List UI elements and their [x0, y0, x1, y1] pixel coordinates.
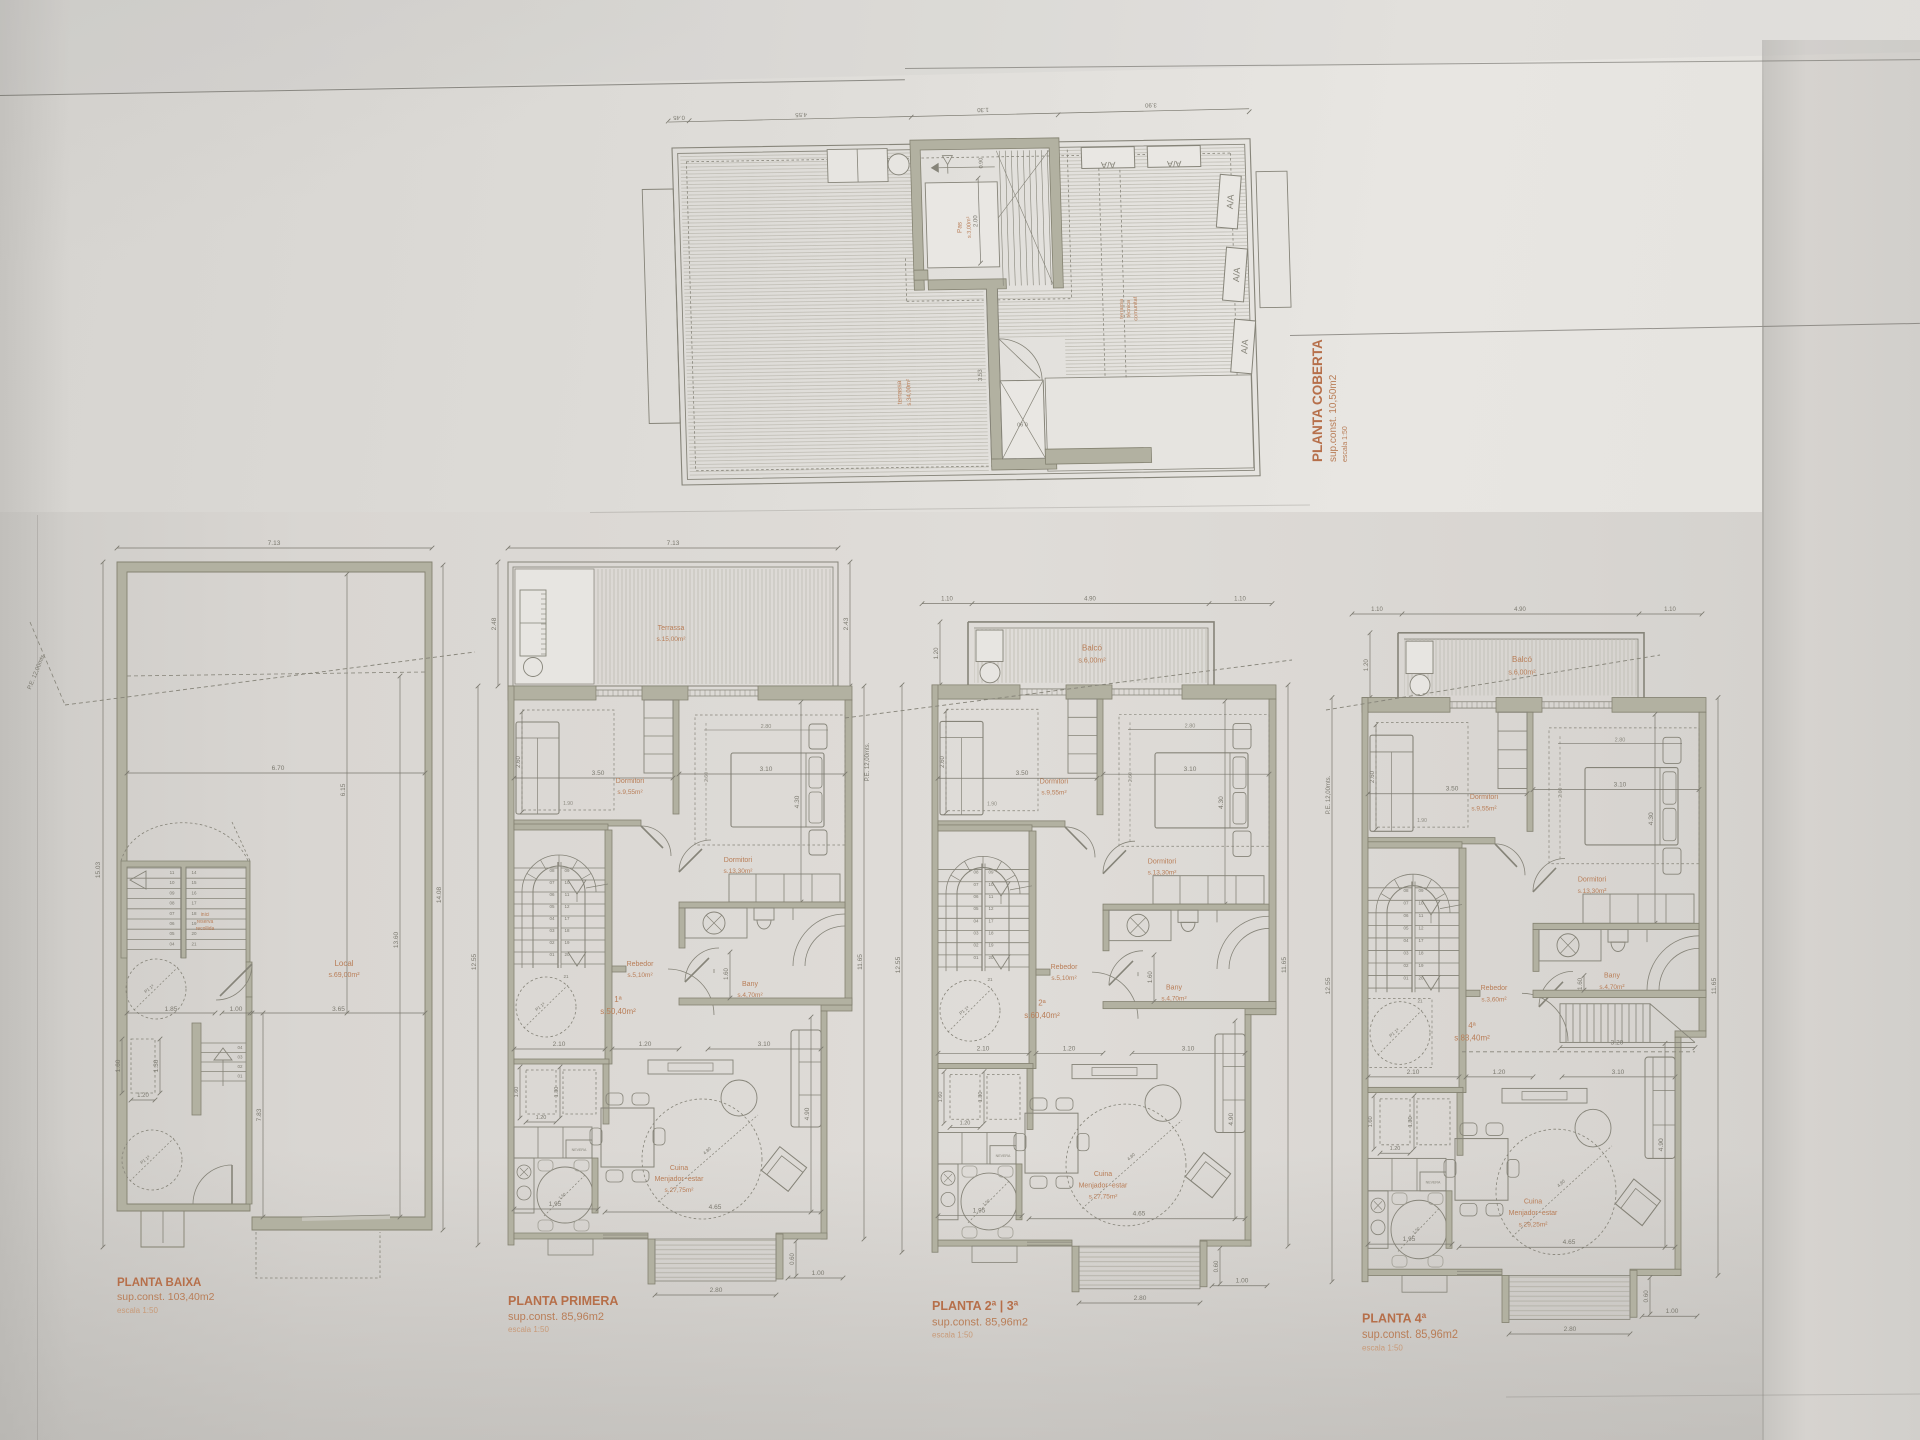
svg-text:s.83,40m²: s.83,40m² [1454, 1033, 1490, 1042]
svg-text:1.20: 1.20 [960, 1120, 971, 1126]
svg-text:07: 07 [169, 911, 175, 916]
svg-text:1.60: 1.60 [938, 1092, 944, 1103]
svg-text:11: 11 [1419, 913, 1424, 918]
svg-text:1,50: 1,50 [557, 1191, 567, 1200]
svg-text:s.60,40m²: s.60,40m² [1024, 1011, 1060, 1020]
svg-text:sup.const. 85,96m2: sup.const. 85,96m2 [508, 1311, 604, 1323]
svg-text:7.13: 7.13 [667, 540, 680, 547]
svg-text:Menjador−estar: Menjador−estar [1509, 1209, 1558, 1217]
svg-text:1.20: 1.20 [1493, 1069, 1506, 1076]
svg-text:1.30: 1.30 [554, 1087, 560, 1098]
svg-text:0.60: 0.60 [790, 1253, 796, 1265]
svg-text:s.50,40m²: s.50,40m² [600, 1007, 636, 1016]
svg-text:3.10: 3.10 [1184, 766, 1197, 773]
svg-text:2.60: 2.60 [1558, 787, 1564, 797]
svg-text:06: 06 [169, 921, 175, 926]
svg-text:Dormitori: Dormitori [1040, 778, 1069, 785]
svg-text:3.10: 3.10 [1182, 1045, 1195, 1052]
svg-text:s.34,00m²: s.34,00m² [906, 379, 913, 406]
svg-text:4.30: 4.30 [1218, 796, 1225, 809]
svg-text:1.20: 1.20 [137, 1093, 149, 1099]
svg-text:4.90: 4.90 [804, 1107, 811, 1120]
svg-text:P1 1ª: P1 1ª [1388, 1027, 1400, 1038]
svg-text:2.00: 2.00 [973, 215, 979, 227]
svg-text:19: 19 [564, 940, 570, 945]
svg-text:1.20: 1.20 [639, 1041, 652, 1048]
svg-text:17: 17 [989, 918, 994, 923]
svg-text:13.60: 13.60 [393, 931, 400, 948]
svg-text:12: 12 [989, 906, 994, 911]
svg-text:s.29,25m²: s.29,25m² [1519, 1221, 1549, 1228]
svg-text:Cuina: Cuina [1094, 1171, 1112, 1178]
svg-text:12: 12 [1418, 925, 1423, 930]
svg-text:2ª: 2ª [1038, 999, 1045, 1008]
svg-text:sup.const. 103,40m2: sup.const. 103,40m2 [117, 1291, 215, 1303]
svg-text:12.55: 12.55 [895, 956, 902, 973]
svg-text:2.60: 2.60 [1128, 772, 1134, 782]
svg-text:07: 07 [1403, 900, 1408, 905]
svg-text:sup.const. 85,96m2: sup.const. 85,96m2 [932, 1316, 1028, 1328]
svg-text:s.27,75m²: s.27,75m² [665, 1187, 695, 1194]
svg-text:Bany: Bany [1604, 972, 1620, 980]
svg-text:NEVERA: NEVERA [1426, 1180, 1441, 1184]
svg-text:4.65: 4.65 [1563, 1239, 1576, 1246]
svg-text:1.20: 1.20 [536, 1115, 547, 1121]
svg-text:03: 03 [237, 1055, 243, 1060]
svg-text:11.65: 11.65 [1711, 977, 1718, 994]
svg-text:7.13: 7.13 [268, 540, 281, 547]
svg-text:1.10: 1.10 [1371, 606, 1383, 613]
svg-text:2.60: 2.60 [940, 755, 946, 767]
svg-text:A/A: A/A [1231, 267, 1242, 282]
svg-text:2.80: 2.80 [1615, 737, 1626, 743]
svg-text:s.5,10m²: s.5,10m² [627, 972, 653, 979]
svg-text:Bany: Bany [1166, 984, 1182, 991]
svg-text:2.60: 2.60 [1369, 770, 1376, 783]
svg-text:3.10: 3.10 [760, 766, 773, 773]
svg-text:1.00: 1.00 [812, 1270, 825, 1277]
svg-text:1.60: 1.60 [1148, 971, 1154, 983]
svg-text:05: 05 [549, 904, 555, 909]
svg-text:1.60: 1.60 [514, 1087, 520, 1098]
svg-text:21: 21 [1417, 999, 1422, 1004]
svg-text:2.43: 2.43 [843, 617, 850, 630]
svg-text:4.30: 4.30 [1648, 812, 1655, 825]
svg-text:s.4,70m²: s.4,70m² [1161, 995, 1187, 1002]
svg-text:escala 1:50: escala 1:50 [932, 1330, 973, 1339]
svg-text:A/A: A/A [1225, 194, 1236, 209]
svg-text:3.53: 3.53 [978, 369, 984, 381]
svg-text:1,50: 1,50 [1412, 1225, 1422, 1234]
svg-text:1.10: 1.10 [1234, 597, 1246, 603]
svg-text:1.30: 1.30 [153, 1059, 160, 1072]
svg-text:12.55: 12.55 [471, 953, 478, 970]
svg-text:4.90: 4.90 [1658, 1138, 1665, 1151]
svg-text:4,80: 4,80 [1126, 1152, 1136, 1162]
svg-text:1.20: 1.20 [1363, 658, 1370, 671]
svg-text:Balcó: Balcó [1512, 655, 1532, 664]
svg-text:18: 18 [989, 931, 994, 936]
svg-text:PLANTA 2ª | 3ª: PLANTA 2ª | 3ª [932, 1299, 1019, 1313]
svg-text:1ª: 1ª [614, 995, 621, 1004]
svg-text:1.00: 1.00 [230, 1006, 243, 1013]
svg-text:2.60: 2.60 [704, 772, 710, 782]
svg-text:08: 08 [169, 901, 175, 906]
svg-text:3.10: 3.10 [758, 1041, 771, 1048]
svg-text:tècnica: tècnica [1126, 299, 1133, 317]
svg-text:01: 01 [549, 952, 555, 957]
svg-text:14.08: 14.08 [436, 886, 443, 903]
svg-text:Local: Local [334, 959, 353, 968]
svg-text:3.50: 3.50 [1446, 785, 1459, 792]
svg-text:sup.const. 85,96m2: sup.const. 85,96m2 [1362, 1329, 1458, 1341]
svg-text:1.30: 1.30 [1408, 1116, 1414, 1127]
svg-text:PLANTA BAIXA: PLANTA BAIXA [117, 1277, 201, 1289]
svg-text:2.80: 2.80 [710, 1287, 723, 1294]
svg-text:01: 01 [1403, 976, 1408, 981]
svg-text:7.83: 7.83 [256, 1108, 263, 1121]
svg-text:1.20: 1.20 [934, 647, 940, 659]
svg-text:02: 02 [237, 1064, 243, 1069]
svg-text:1.20: 1.20 [1063, 1045, 1076, 1052]
svg-text:20: 20 [564, 952, 570, 957]
svg-text:2.60: 2.60 [516, 756, 522, 768]
svg-text:4.30: 4.30 [794, 795, 801, 808]
svg-text:19: 19 [1418, 963, 1423, 968]
svg-text:12.55: 12.55 [1325, 977, 1332, 994]
svg-text:03: 03 [549, 928, 555, 933]
svg-text:0.90: 0.90 [978, 158, 984, 169]
svg-text:15: 15 [191, 880, 197, 885]
svg-text:4.65: 4.65 [709, 1204, 722, 1211]
svg-text:P1 1ª: P1 1ª [958, 1005, 970, 1016]
svg-text:03: 03 [1403, 951, 1408, 956]
svg-text:18: 18 [1418, 951, 1423, 956]
svg-text:10: 10 [564, 880, 570, 885]
svg-text:s.9,55m²: s.9,55m² [1471, 805, 1497, 812]
svg-text:04: 04 [1403, 938, 1408, 943]
svg-text:11.65: 11.65 [1281, 957, 1288, 973]
svg-text:s.6,00m²: s.6,00m² [1508, 668, 1536, 676]
svg-text:08: 08 [1403, 888, 1408, 893]
svg-text:0.60: 0.60 [1643, 1290, 1650, 1303]
svg-text:1.90: 1.90 [987, 802, 997, 808]
svg-text:01: 01 [237, 1074, 243, 1079]
svg-text:2.10: 2.10 [977, 1045, 990, 1052]
svg-text:s.3,00m²: s.3,00m² [966, 216, 973, 238]
svg-text:02: 02 [974, 943, 979, 948]
svg-text:05: 05 [169, 931, 175, 936]
svg-text:3.65: 3.65 [332, 1006, 345, 1013]
svg-text:06: 06 [1403, 913, 1408, 918]
svg-text:06: 06 [549, 892, 555, 897]
svg-text:09: 09 [169, 890, 175, 895]
svg-text:s.27,75m²: s.27,75m² [1089, 1193, 1119, 1200]
svg-text:3.90: 3.90 [1144, 101, 1157, 107]
svg-text:3.50: 3.50 [592, 770, 605, 777]
svg-text:4.90: 4.90 [1228, 1113, 1235, 1126]
svg-text:19: 19 [989, 943, 994, 948]
svg-text:escala 1:50: escala 1:50 [117, 1306, 158, 1315]
svg-text:NEVERA: NEVERA [996, 1154, 1011, 1158]
svg-text:s.69,00m²: s.69,00m² [328, 972, 360, 979]
svg-text:0.90: 0.90 [1017, 420, 1028, 426]
svg-text:1.00: 1.00 [1666, 1308, 1679, 1315]
svg-text:4,80: 4,80 [702, 1146, 712, 1156]
svg-text:escala 1:50: escala 1:50 [1342, 426, 1349, 462]
svg-text:1.10: 1.10 [1664, 606, 1676, 613]
svg-text:10: 10 [169, 880, 175, 885]
svg-text:s.3,60m²: s.3,60m² [1481, 997, 1507, 1004]
svg-text:Pas: Pas [956, 221, 963, 233]
svg-text:16: 16 [191, 890, 197, 895]
svg-text:Menjador−estar: Menjador−estar [655, 1176, 705, 1183]
svg-text:escala 1:50: escala 1:50 [1362, 1344, 1403, 1353]
svg-text:01: 01 [974, 955, 979, 960]
svg-text:3.20: 3.20 [1611, 1039, 1624, 1046]
svg-text:17: 17 [191, 901, 197, 906]
svg-text:4.65: 4.65 [1133, 1211, 1146, 1218]
svg-text:15.03: 15.03 [95, 861, 102, 878]
svg-text:04: 04 [169, 941, 175, 946]
svg-text:s.6,00m²: s.6,00m² [1078, 657, 1106, 664]
svg-text:P1 1ª: P1 1ª [534, 1001, 546, 1012]
svg-text:Bany: Bany [742, 981, 758, 988]
svg-text:1.60: 1.60 [115, 1059, 122, 1072]
svg-text:18: 18 [564, 928, 570, 933]
svg-text:1.95: 1.95 [549, 1201, 562, 1208]
svg-text:07: 07 [974, 882, 979, 887]
svg-text:A/A: A/A [1167, 159, 1182, 169]
svg-text:1.60: 1.60 [1577, 977, 1584, 990]
svg-text:2.80: 2.80 [1134, 1295, 1147, 1302]
svg-text:s.9,55m²: s.9,55m² [1041, 789, 1067, 796]
svg-text:17: 17 [1418, 938, 1423, 943]
svg-text:terrassa: terrassa [1119, 298, 1126, 319]
svg-text:1.60: 1.60 [1368, 1116, 1374, 1127]
svg-text:1.10: 1.10 [941, 597, 953, 603]
svg-text:11: 11 [565, 892, 570, 897]
svg-text:1.20: 1.20 [1390, 1146, 1401, 1152]
svg-text:6.15: 6.15 [340, 783, 347, 796]
svg-text:04: 04 [974, 918, 979, 923]
svg-text:s.5,10m²: s.5,10m² [1051, 975, 1077, 982]
svg-text:1.60: 1.60 [724, 968, 730, 980]
svg-text:6.70: 6.70 [272, 765, 285, 772]
svg-text:1.90: 1.90 [563, 801, 573, 807]
svg-text:0.60: 0.60 [1214, 1260, 1220, 1272]
svg-text:02: 02 [1403, 963, 1408, 968]
svg-text:P1 1ª: P1 1ª [139, 1154, 151, 1165]
svg-text:21: 21 [988, 977, 993, 982]
svg-text:s.15,00m²: s.15,00m² [657, 636, 687, 643]
svg-text:18: 18 [191, 911, 197, 916]
svg-text:Rebedor: Rebedor [1481, 984, 1508, 992]
svg-text:17: 17 [564, 916, 570, 921]
svg-text:20: 20 [989, 955, 994, 960]
svg-text:21: 21 [191, 941, 197, 946]
svg-text:Dormitori: Dormitori [724, 857, 753, 864]
svg-text:2.10: 2.10 [553, 1041, 566, 1048]
svg-text:1,50: 1,50 [981, 1197, 991, 1206]
svg-text:Terrassa: Terrassa [658, 625, 685, 632]
svg-text:4.55: 4.55 [794, 111, 807, 117]
svg-text:14: 14 [191, 870, 197, 875]
svg-text:1.30: 1.30 [976, 106, 989, 112]
svg-text:4ª: 4ª [1468, 1021, 1476, 1030]
svg-text:2.10: 2.10 [1407, 1069, 1420, 1076]
svg-text:PLANTA PRIMERA: PLANTA PRIMERA [508, 1294, 618, 1308]
svg-text:s.4,70m²: s.4,70m² [1599, 984, 1625, 991]
svg-text:02: 02 [549, 940, 555, 945]
svg-text:Cuina: Cuina [1524, 1197, 1542, 1205]
svg-text:05: 05 [974, 906, 979, 911]
svg-text:P.E. 12,00mts.: P.E. 12,00mts. [27, 652, 47, 690]
svg-text:Dormitori: Dormitori [616, 778, 645, 785]
svg-text:10: 10 [1418, 900, 1423, 905]
svg-text:Menjador−estar: Menjador−estar [1079, 1182, 1128, 1189]
svg-text:PLANTA 4ª: PLANTA 4ª [1362, 1310, 1427, 1325]
svg-text:NEVERA: NEVERA [572, 1148, 587, 1152]
svg-text:Dormitori: Dormitori [1578, 875, 1607, 883]
svg-text:P.E. 12,00mts.: P.E. 12,00mts. [1326, 775, 1332, 814]
svg-text:2.80: 2.80 [761, 724, 772, 730]
svg-text:4.90: 4.90 [1514, 606, 1526, 613]
svg-text:3.50: 3.50 [1016, 770, 1029, 777]
svg-text:inici: inici [201, 912, 210, 918]
svg-text:s.4,70m²: s.4,70m² [737, 992, 763, 999]
svg-text:Cuina: Cuina [670, 1165, 688, 1172]
svg-text:06: 06 [974, 894, 979, 899]
svg-text:recollida: recollida [196, 926, 215, 932]
svg-text:2.80: 2.80 [1185, 723, 1196, 729]
svg-text:4,80: 4,80 [1556, 1178, 1566, 1188]
svg-text:1.30: 1.30 [978, 1092, 984, 1103]
svg-text:Dormitori: Dormitori [1148, 858, 1177, 865]
svg-text:04: 04 [549, 916, 555, 921]
svg-text:20: 20 [1418, 976, 1423, 981]
svg-text:1.85: 1.85 [165, 1006, 178, 1013]
svg-text:1.90: 1.90 [1417, 818, 1427, 824]
svg-text:Balcó: Balcó [1082, 643, 1102, 652]
svg-text:12: 12 [564, 904, 570, 909]
svg-text:05: 05 [1403, 925, 1408, 930]
svg-text:09: 09 [989, 870, 994, 875]
svg-text:4.90: 4.90 [1084, 597, 1096, 603]
svg-text:escala 1:50: escala 1:50 [508, 1325, 549, 1334]
svg-text:09: 09 [564, 868, 570, 873]
svg-text:11: 11 [989, 894, 994, 899]
svg-text:1.00: 1.00 [1236, 1278, 1249, 1285]
svg-text:Rebedor: Rebedor [1051, 964, 1078, 971]
svg-text:A/A: A/A [1239, 339, 1250, 354]
svg-text:03: 03 [974, 931, 979, 936]
svg-text:3.10: 3.10 [1612, 1069, 1625, 1076]
svg-text:0.45: 0.45 [672, 114, 685, 120]
svg-text:P.E. 12,00mts.: P.E. 12,00mts. [865, 742, 871, 781]
svg-text:09: 09 [1418, 888, 1423, 893]
svg-text:1.95: 1.95 [973, 1208, 986, 1215]
svg-text:2.80: 2.80 [1564, 1326, 1577, 1333]
svg-text:11.65: 11.65 [857, 954, 864, 970]
svg-text:11: 11 [170, 870, 175, 875]
svg-text:sup.const. 10,50m2: sup.const. 10,50m2 [1328, 374, 1339, 462]
svg-text:08: 08 [549, 868, 555, 873]
svg-text:3.10: 3.10 [1614, 781, 1627, 788]
svg-text:2.48: 2.48 [491, 617, 498, 630]
svg-text:08: 08 [974, 870, 979, 875]
svg-text:P1 1ª: P1 1ª [143, 983, 155, 994]
svg-text:s.9,55m²: s.9,55m² [617, 789, 643, 796]
svg-text:21: 21 [563, 974, 569, 979]
svg-text:PLANTA COBERTA: PLANTA COBERTA [1310, 339, 1325, 462]
svg-text:A/A: A/A [1101, 160, 1116, 170]
svg-text:reserva: reserva [197, 919, 214, 925]
svg-text:terrassa: terrassa [896, 380, 904, 404]
svg-text:Dormitori: Dormitori [1470, 793, 1499, 801]
svg-text:07: 07 [549, 880, 555, 885]
svg-text:comunitat: comunitat [1133, 296, 1140, 320]
svg-text:Rebedor: Rebedor [627, 961, 655, 968]
svg-text:1.95: 1.95 [1403, 1236, 1416, 1243]
svg-text:10: 10 [989, 882, 994, 887]
svg-text:04: 04 [237, 1045, 243, 1050]
